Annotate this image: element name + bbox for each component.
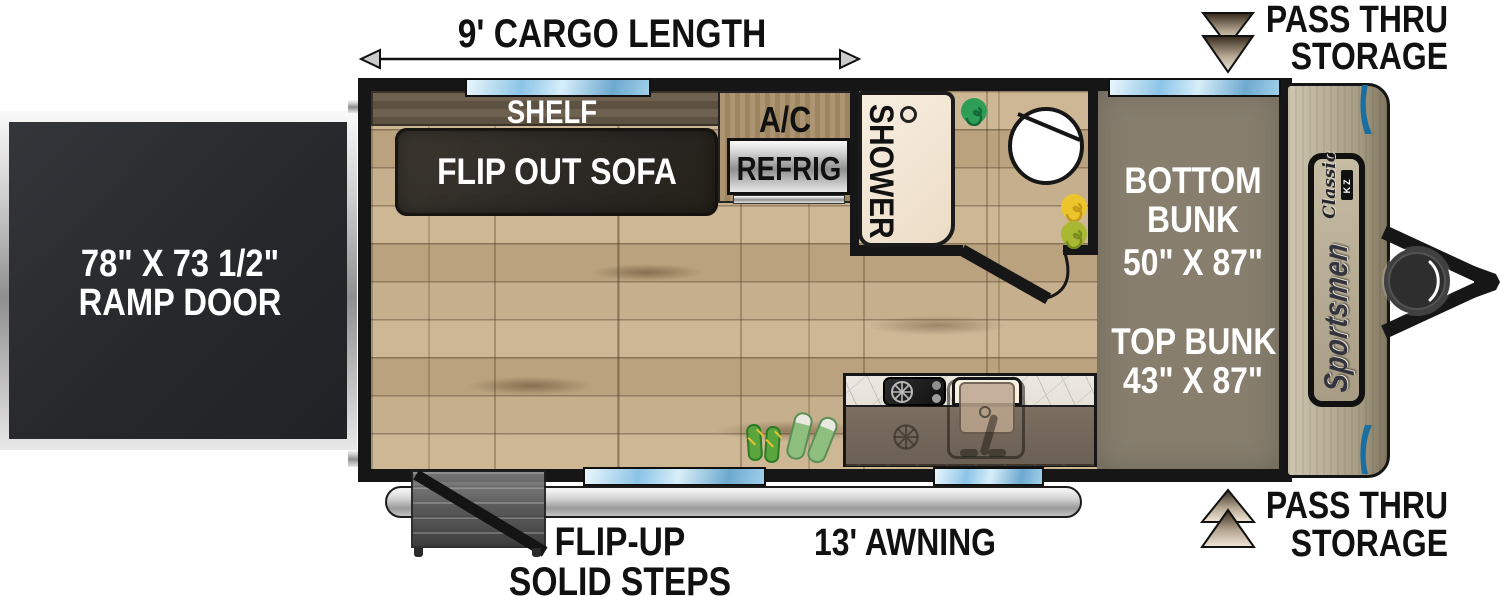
- top-bunk-line1: TOP BUNK: [1111, 323, 1274, 360]
- window-bottom-kitchen: [933, 467, 1044, 486]
- window-top-bunk: [1108, 78, 1281, 97]
- sink-foot-left: [960, 449, 978, 457]
- towel-green: [959, 96, 989, 126]
- cooktop-knob-1: [932, 381, 941, 390]
- toilet: [1002, 102, 1090, 190]
- shower-drain: [900, 106, 917, 123]
- cap-accent-bottom: [1356, 424, 1378, 474]
- refrig-label: REFRIG: [705, 152, 873, 185]
- ramp-door-label: RAMP DOOR: [51, 284, 309, 322]
- window-bottom-door-side: [583, 467, 766, 486]
- brand-maker-chip: KZ: [1341, 170, 1353, 200]
- bottom-bunk-size: 50" X 87": [1111, 244, 1274, 281]
- burner-icon: [889, 379, 915, 405]
- brand-badge-content: Sportsmen Classic KZ: [1314, 160, 1358, 400]
- brand-name: Sportsmen: [1317, 241, 1355, 394]
- pass-thru-top-line2: STORAGE: [1196, 38, 1448, 76]
- steps-label-line2: SOLID STEPS: [494, 562, 746, 597]
- steps-label-line1: FLIP-UP: [494, 522, 746, 562]
- bottom-bunk-line2: BUNK: [1111, 201, 1274, 238]
- floorplan-canvas: 78" X 73 1/2" RAMP DOOR 9' CARGO LENGTH …: [0, 0, 1500, 597]
- sofa-label: FLIP OUT SOFA: [428, 153, 686, 190]
- trailer-hitch: [1378, 222, 1500, 344]
- ramp-door-dimension: 78" X 73 1/2": [51, 245, 309, 283]
- towel-olive: [1059, 219, 1089, 249]
- shelf-label: SHELF: [427, 96, 676, 128]
- burner-ghost-icon: [891, 422, 921, 452]
- pass-thru-top-line1: PASS THRU: [1196, 1, 1448, 39]
- brand-series: Classic: [1320, 152, 1340, 219]
- bottom-bunk-line1: BOTTOM: [1111, 162, 1274, 199]
- bathroom-door-arc: [1040, 245, 1082, 303]
- top-bunk-size: 43" X 87": [1111, 362, 1274, 399]
- shower-label: SHOWER: [864, 104, 898, 236]
- cooktop-knob-2: [932, 394, 941, 403]
- awning-label: 13' AWNING: [779, 524, 1031, 562]
- towel-yellow: [1059, 192, 1089, 222]
- pass-thru-bottom-line1: PASS THRU: [1196, 487, 1448, 525]
- refrigerator-base: [733, 195, 845, 204]
- pass-thru-bottom-line2: STORAGE: [1196, 525, 1448, 563]
- ac-label: A/C: [701, 102, 869, 138]
- entry-steps-foot-left: [414, 548, 423, 557]
- cap-accent-top: [1356, 85, 1378, 135]
- sink-foot-right: [988, 449, 1006, 457]
- cargo-length-arrow: [358, 48, 862, 74]
- window-top-living: [465, 78, 651, 97]
